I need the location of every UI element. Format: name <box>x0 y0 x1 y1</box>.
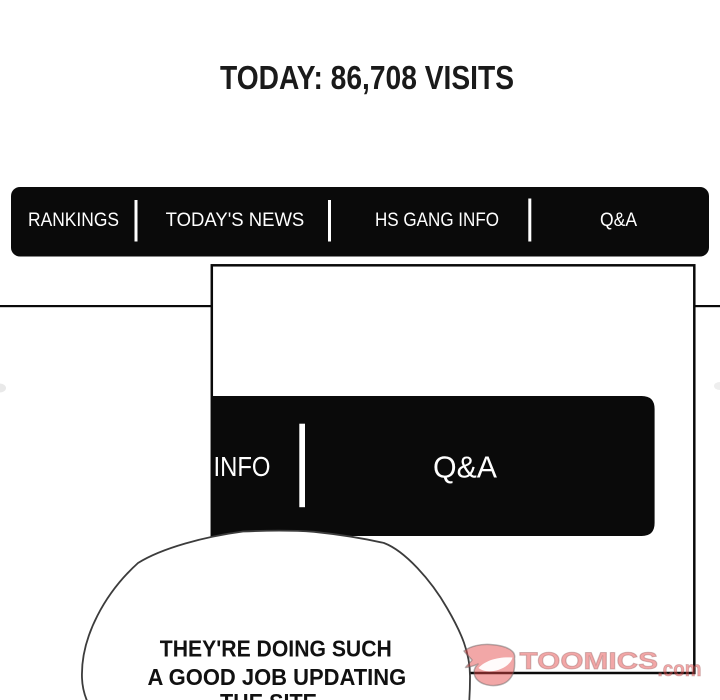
svg-text:Q&A: Q&A <box>433 450 497 485</box>
svg-text:TOOMICS: TOOMICS <box>520 648 659 675</box>
svg-text:HS GANG INFO: HS GANG INFO <box>375 210 499 231</box>
svg-text:TODAY: 86,708 VISITS: TODAY: 86,708 VISITS <box>220 59 514 96</box>
svg-text:THE SITE: THE SITE <box>220 689 317 700</box>
svg-text:INFO: INFO <box>214 451 271 482</box>
svg-text:A GOOD JOB UPDATING: A GOOD JOB UPDATING <box>148 664 407 690</box>
svg-text:TODAY'S NEWS: TODAY'S NEWS <box>166 210 305 231</box>
svg-text:THEY'RE DOING SUCH: THEY'RE DOING SUCH <box>160 636 392 662</box>
svg-text:Q&A: Q&A <box>600 210 637 231</box>
svg-text:RANKINGS: RANKINGS <box>28 210 119 231</box>
svg-text:.com: .com <box>658 658 702 681</box>
